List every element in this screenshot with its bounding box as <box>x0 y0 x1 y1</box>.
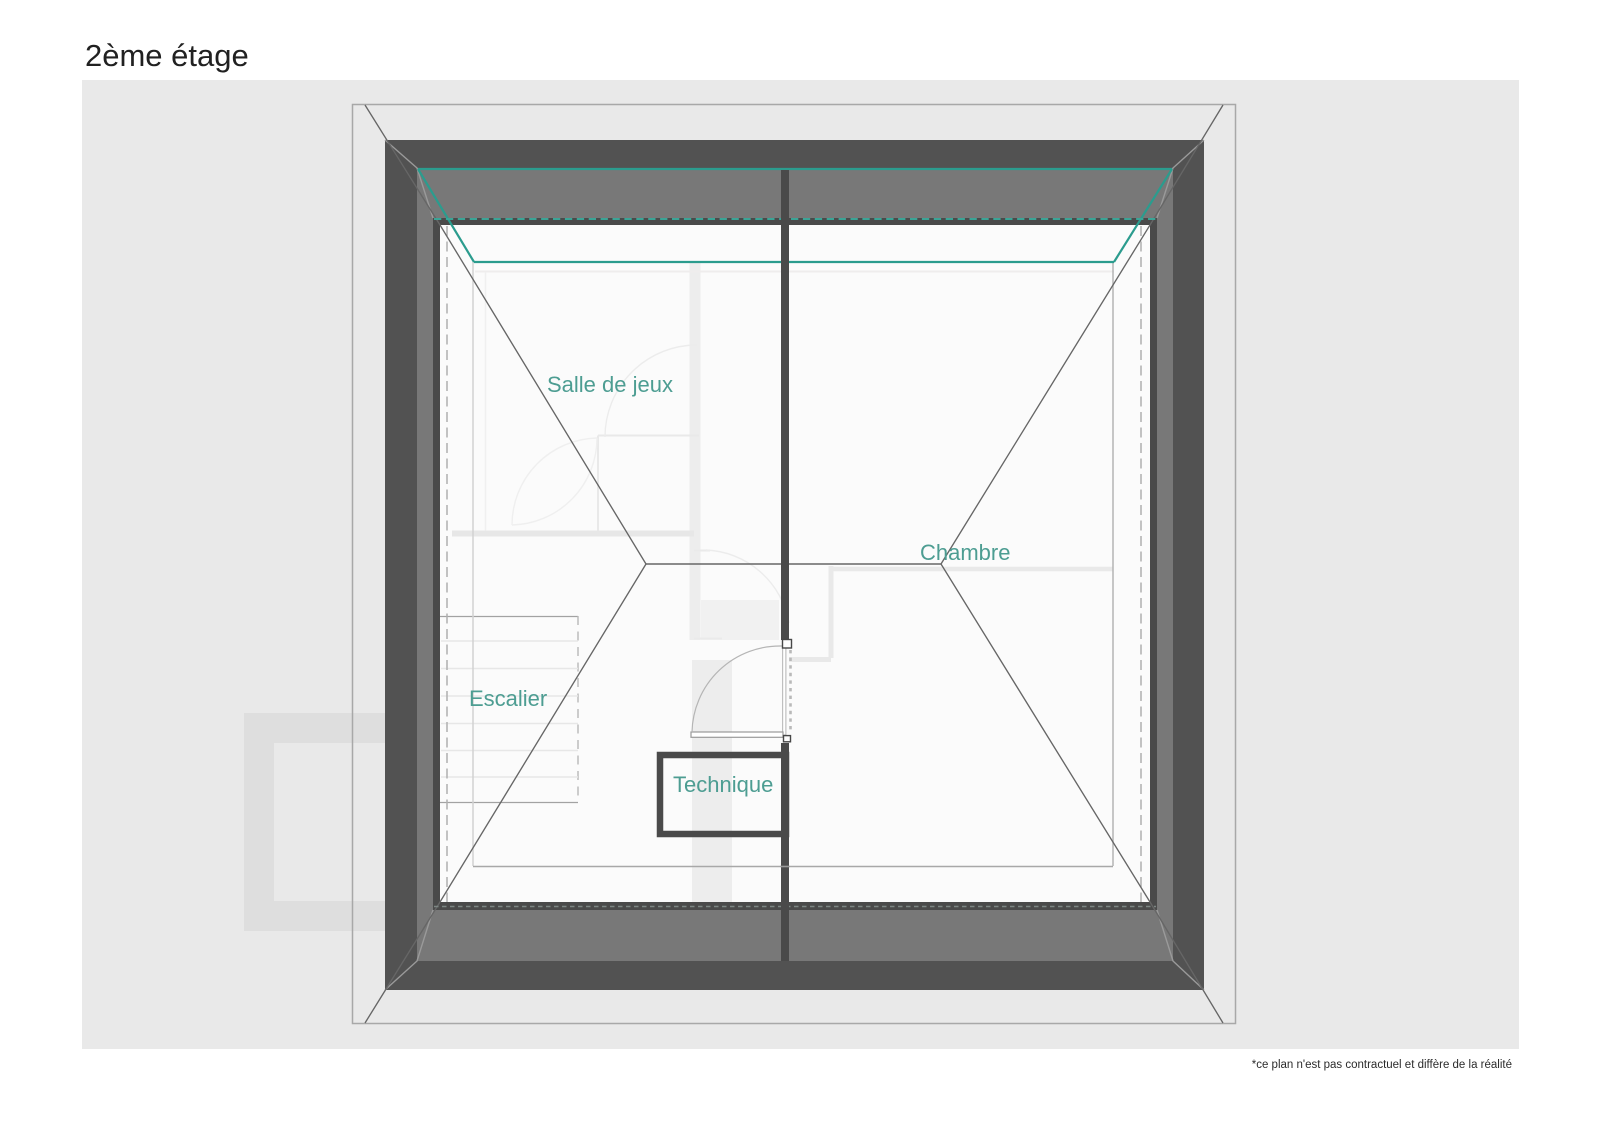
svg-text:*ce plan n'est pas contractuel: *ce plan n'est pas contractuel et diffèr… <box>1252 1059 1512 1071</box>
svg-text:Chambre: Chambre <box>920 540 1010 565</box>
svg-text:Salle de jeux: Salle de jeux <box>547 372 673 397</box>
svg-text:2ème étage: 2ème étage <box>85 38 249 73</box>
svg-text:Technique: Technique <box>673 772 773 797</box>
svg-text:Escalier: Escalier <box>469 686 547 711</box>
